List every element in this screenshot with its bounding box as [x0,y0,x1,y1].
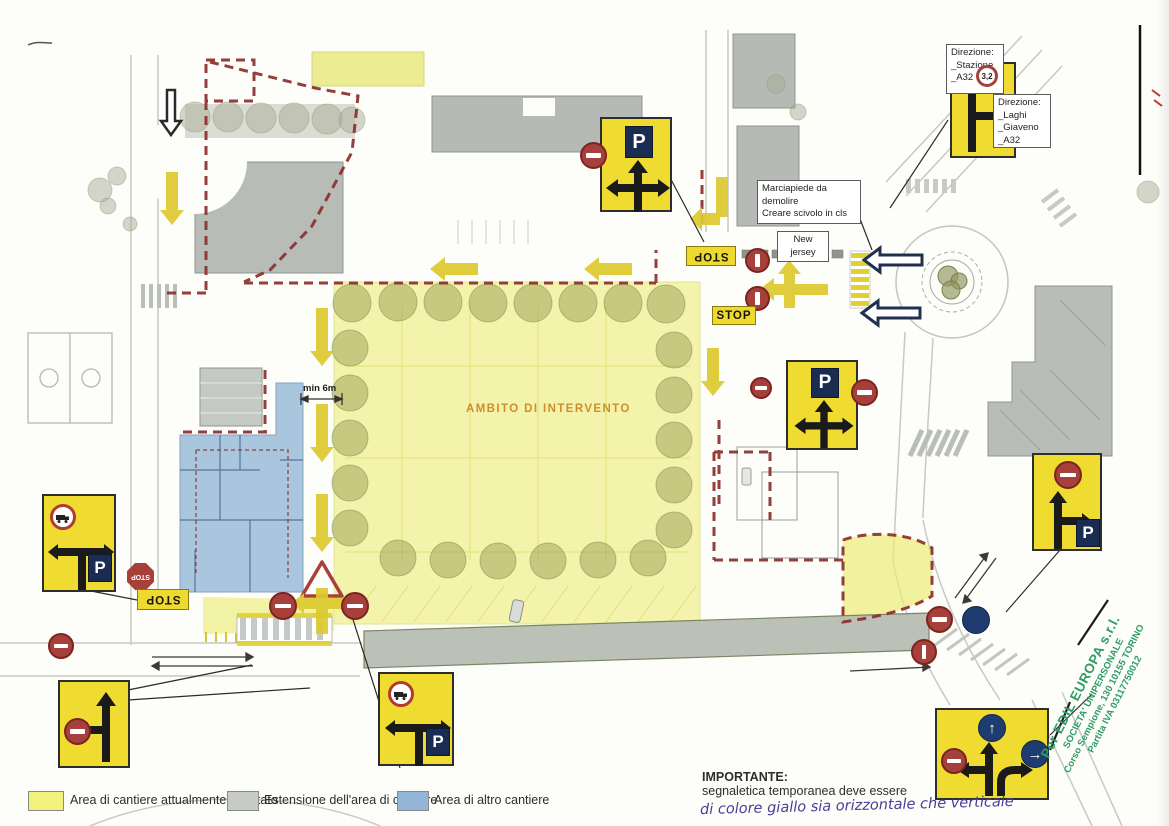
up-arrow-glyph: ↑ [988,720,996,737]
important-line: segnaletica temporanea deve essere [702,784,907,798]
mandatory-right-icon [962,606,990,634]
width-limit-value: 3,2 [981,72,992,81]
parking-letter: P [1082,523,1093,543]
no-entry-icon [941,748,967,774]
scan-edge-shadow [1157,0,1169,826]
no-entry-icon [64,718,91,745]
stop-panel: STOP [686,246,736,266]
stop-text: STOP [131,573,150,580]
sign-turns-parking-bottom: P [378,672,454,766]
stop-text: STOP [693,250,728,262]
parking-badge: P [1076,519,1100,547]
navy-left-arrow-icon [864,248,922,272]
no-entry-icon [48,633,74,659]
legend-swatch-blue [397,791,429,811]
note-marciapiede: Marciapiede da demolire Creare scivolo i… [757,180,861,224]
no-entry-icon [911,639,937,665]
no-trucks-icon [388,681,414,707]
mandatory-straight-icon: ↑ [978,714,1006,742]
direction-title: Direzione: [951,47,999,60]
note-new-jersey: New jersey [777,231,829,262]
parking-letter: P [94,558,105,578]
dimension-label: min 6m [303,383,336,394]
parking-badge: P [88,554,112,582]
cross-arrows-icon [606,160,670,212]
direction-line: _Laghi [998,110,1046,123]
no-trucks-icon [50,504,76,530]
parking-letter: P [819,372,832,394]
legend-swatch-yellow [28,791,64,811]
area-label: AMBITO DI INTERVENTO [466,403,631,415]
legend-label: Area di altro cantiere [434,793,549,807]
sign-ahead-or-left [58,680,130,768]
sign-left-turns-parking: P [42,494,116,592]
site-plan-page: P Direzione: _Stazione _A32 3,2 Direzion… [0,0,1169,826]
width-limit-badge: 3,2 [976,65,998,87]
no-entry-icon [926,606,953,633]
legend-swatch-gray [227,791,259,811]
parking-badge: P [811,368,839,398]
no-entry-icon [851,379,878,406]
cross-arrows-icon [792,400,856,448]
stop-text: STOP [716,310,751,322]
direction-line: _A32 [998,135,1046,148]
truck-glyph [53,507,73,527]
important-title: IMPORTANTE: [702,770,788,784]
sign-parking-cross-top: P [600,117,672,212]
parking-badge: P [625,126,653,158]
yellow-area-bottom-right [843,534,932,622]
truck-glyph [391,684,411,704]
basketball-court [28,333,112,423]
no-entry-icon [341,592,369,620]
parking-letter: P [432,732,443,752]
note-line: Marciapiede da demolire [762,183,856,208]
direction-line: _Giaveno [998,122,1046,135]
direction-title: Direzione: [998,97,1046,110]
no-entry-icon [750,377,772,399]
no-entry-icon [269,592,297,620]
stop-text: STOP [145,594,180,606]
sign-parking-cross-mid: P [786,360,858,450]
parking-badge: P [426,728,450,756]
no-entry-icon [745,248,770,273]
no-entry-icon [580,142,607,169]
parking-letter: P [632,131,645,154]
yellow-area-top-strip [312,52,424,86]
note-line: Creare scivolo in cls [762,208,856,221]
note-line: New jersey [782,234,824,259]
no-entry-icon [1054,461,1082,489]
sign-ahead-right-parking: P [1032,453,1102,551]
stop-panel: STOP [137,589,189,610]
roundabout [922,252,982,312]
stop-panel: STOP [712,306,756,325]
direction-note-laghi: Direzione: _Laghi _Giaveno _A32 [993,94,1051,148]
